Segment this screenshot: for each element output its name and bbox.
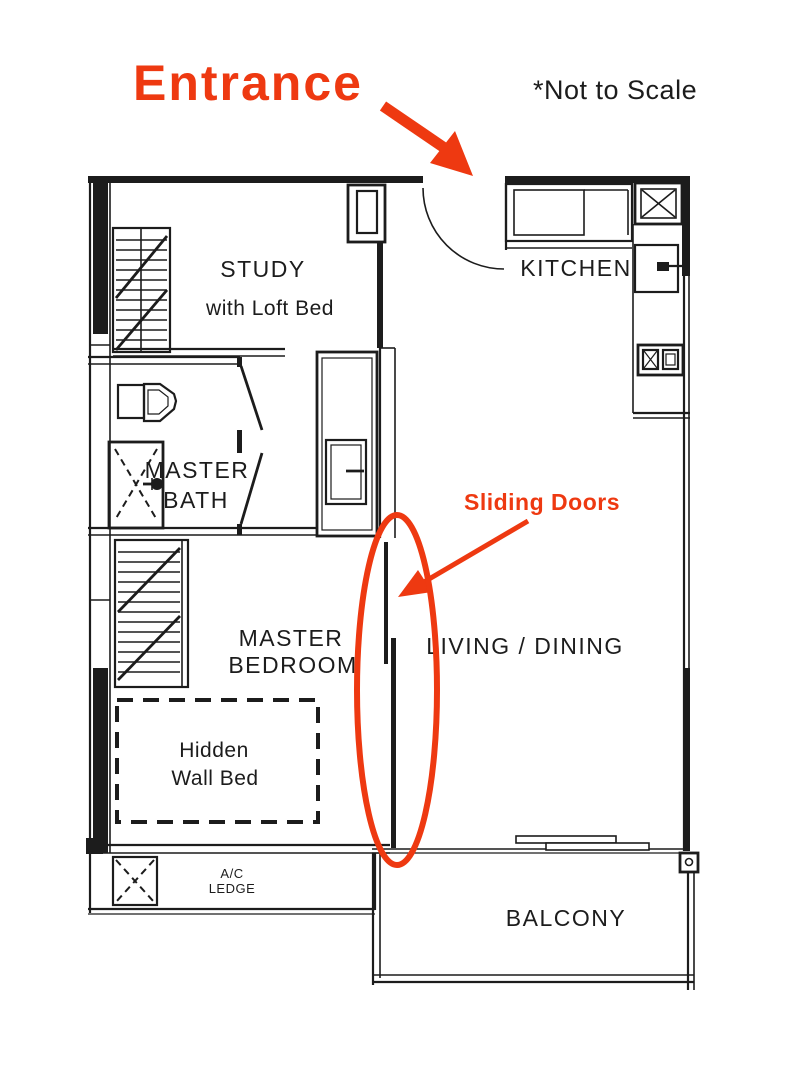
bedroom-wardrobe-icon [115, 540, 188, 687]
sliding-doors-ellipse-icon [357, 515, 437, 865]
right-wall-block-bottom [683, 668, 690, 851]
study-sublabel: with Loft Bed [205, 297, 334, 320]
kitchen-basin-icon [635, 245, 686, 292]
balcony-column-icon [680, 853, 698, 872]
hidden-wall-bed-label-line1: Hidden [179, 739, 249, 762]
sliding-doors-label: Sliding Doors [464, 489, 620, 515]
master-bath-label-line2: BATH [163, 487, 229, 513]
study-wardrobe-icon [113, 228, 170, 352]
master-bedroom-label-line1: MASTER [239, 625, 344, 651]
study-label: STUDY [220, 256, 305, 282]
floor-plan-svg: STUDY with Loft Bed KITCHEN MASTER BATH … [0, 0, 800, 1075]
entrance-door-arc [423, 188, 504, 269]
master-bedroom-label-line2: BEDROOM [228, 652, 357, 678]
sliding-door-panel-2 [391, 638, 396, 848]
kitchen-label: KITCHEN [520, 255, 631, 281]
left-wall-block-upper [93, 176, 108, 334]
tall-cabinet-icon [317, 352, 377, 536]
sliding-doors [377, 242, 396, 848]
toilet-icon [118, 384, 176, 421]
balcony-label: BALCONY [506, 905, 626, 931]
entrance-annotation: Entrance [133, 55, 473, 176]
sliding-door-panel-1 [384, 542, 388, 664]
balcony-sliding-door-icon [516, 836, 649, 850]
living-dining-label: LIVING / DINING [426, 633, 624, 659]
kitchen-counter [506, 184, 690, 418]
bath-door-leaf-upper [241, 366, 262, 430]
entrance-arrow-icon [383, 106, 473, 176]
stove-icon [638, 345, 683, 375]
not-to-scale-label: *Not to Scale [533, 75, 697, 105]
master-bath-label-line1: MASTER [145, 457, 250, 483]
ac-unit-icon [113, 857, 157, 905]
study-fixtures [113, 228, 285, 356]
left-wall-block-lower [93, 668, 108, 853]
kitchen-sink-icon [635, 183, 682, 224]
ledge-corner-block [86, 838, 103, 854]
floor-plan-page: STUDY with Loft Bed KITCHEN MASTER BATH … [0, 0, 800, 1075]
entrance-label: Entrance [133, 55, 363, 111]
top-wall-left [88, 176, 423, 183]
entrance-column-box-inner [357, 191, 377, 233]
ac-ledge-label-line1: A/C [220, 866, 243, 881]
entrance-door [348, 183, 506, 269]
hidden-wall-bed-label-line2: Wall Bed [171, 767, 258, 790]
spine-wall [377, 242, 383, 348]
sliding-doors-annotation: Sliding Doors [357, 489, 620, 865]
ac-ledge-label-line2: LEDGE [209, 881, 256, 896]
kitchen-fixtures [506, 183, 690, 418]
